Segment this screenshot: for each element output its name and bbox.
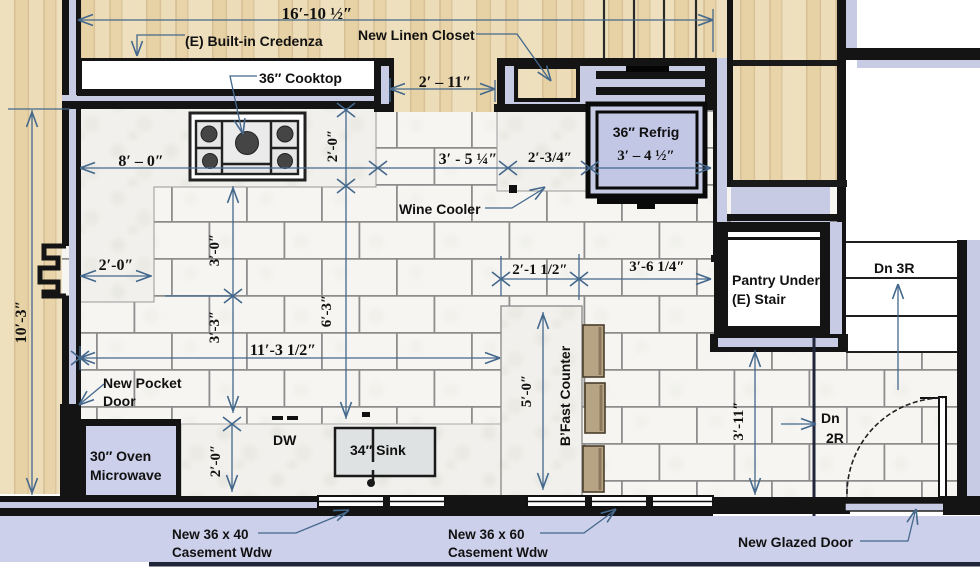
- svg-text:Pantry Under: Pantry Under: [732, 272, 820, 288]
- svg-text:16′-10 ½″: 16′-10 ½″: [282, 4, 353, 23]
- svg-text:2R: 2R: [826, 430, 844, 446]
- svg-text:New 36 x 40: New 36 x 40: [172, 527, 249, 542]
- svg-text:New Linen Closet: New Linen Closet: [358, 27, 475, 43]
- svg-text:(E) Built-in Credenza: (E) Built-in Credenza: [185, 33, 323, 49]
- svg-text:2′-0″: 2′-0″: [325, 130, 341, 163]
- svg-text:Wine Cooler: Wine Cooler: [399, 201, 481, 217]
- svg-text:10′-3″: 10′-3″: [13, 301, 30, 344]
- svg-text:2′-1 1/2″: 2′-1 1/2″: [512, 262, 567, 278]
- svg-text:Dn 3R: Dn 3R: [874, 260, 914, 276]
- svg-text:2′-3/4″: 2′-3/4″: [528, 150, 572, 166]
- svg-text:3′-3″: 3′-3″: [207, 311, 223, 344]
- svg-text:6′-3″: 6′-3″: [319, 295, 335, 328]
- svg-text:3′-6 1/4″: 3′-6 1/4″: [629, 259, 684, 275]
- svg-text:34″ Sink: 34″ Sink: [350, 442, 406, 458]
- svg-text:(E) Stair: (E) Stair: [732, 291, 786, 307]
- svg-text:Microwave: Microwave: [90, 467, 162, 483]
- svg-text:3′ - 5 ¼″: 3′ - 5 ¼″: [439, 151, 498, 168]
- svg-text:36″ Cooktop: 36″ Cooktop: [259, 70, 342, 86]
- svg-text:2′-0″: 2′-0″: [99, 257, 134, 274]
- svg-text:Dn: Dn: [821, 410, 840, 426]
- svg-text:B’Fast Counter: B’Fast Counter: [557, 345, 573, 446]
- svg-text:Door: Door: [103, 393, 136, 409]
- svg-text:36″ Refrig: 36″ Refrig: [613, 124, 680, 140]
- svg-text:8′ – 0″: 8′ – 0″: [118, 153, 163, 170]
- svg-text:New Pocket: New Pocket: [103, 375, 182, 391]
- svg-text:5′-0″: 5′-0″: [519, 375, 535, 408]
- svg-text:3′ – 4 ½″: 3′ – 4 ½″: [617, 148, 675, 164]
- svg-text:30″ Oven: 30″ Oven: [90, 448, 151, 464]
- svg-text:New Glazed Door: New Glazed Door: [738, 534, 854, 550]
- svg-text:11′-3 1/2″: 11′-3 1/2″: [250, 342, 316, 359]
- svg-text:2′ – 11″: 2′ – 11″: [419, 74, 471, 91]
- svg-text:3′-11″: 3′-11″: [731, 401, 747, 440]
- svg-text:New 36 x 60: New 36 x 60: [448, 527, 525, 542]
- svg-text:3′-0″: 3′-0″: [207, 234, 223, 267]
- svg-text:2′-0″: 2′-0″: [208, 445, 224, 478]
- svg-text:Casement Wdw: Casement Wdw: [172, 545, 272, 560]
- svg-text:DW: DW: [273, 432, 297, 448]
- svg-text:Casement Wdw: Casement Wdw: [448, 545, 548, 560]
